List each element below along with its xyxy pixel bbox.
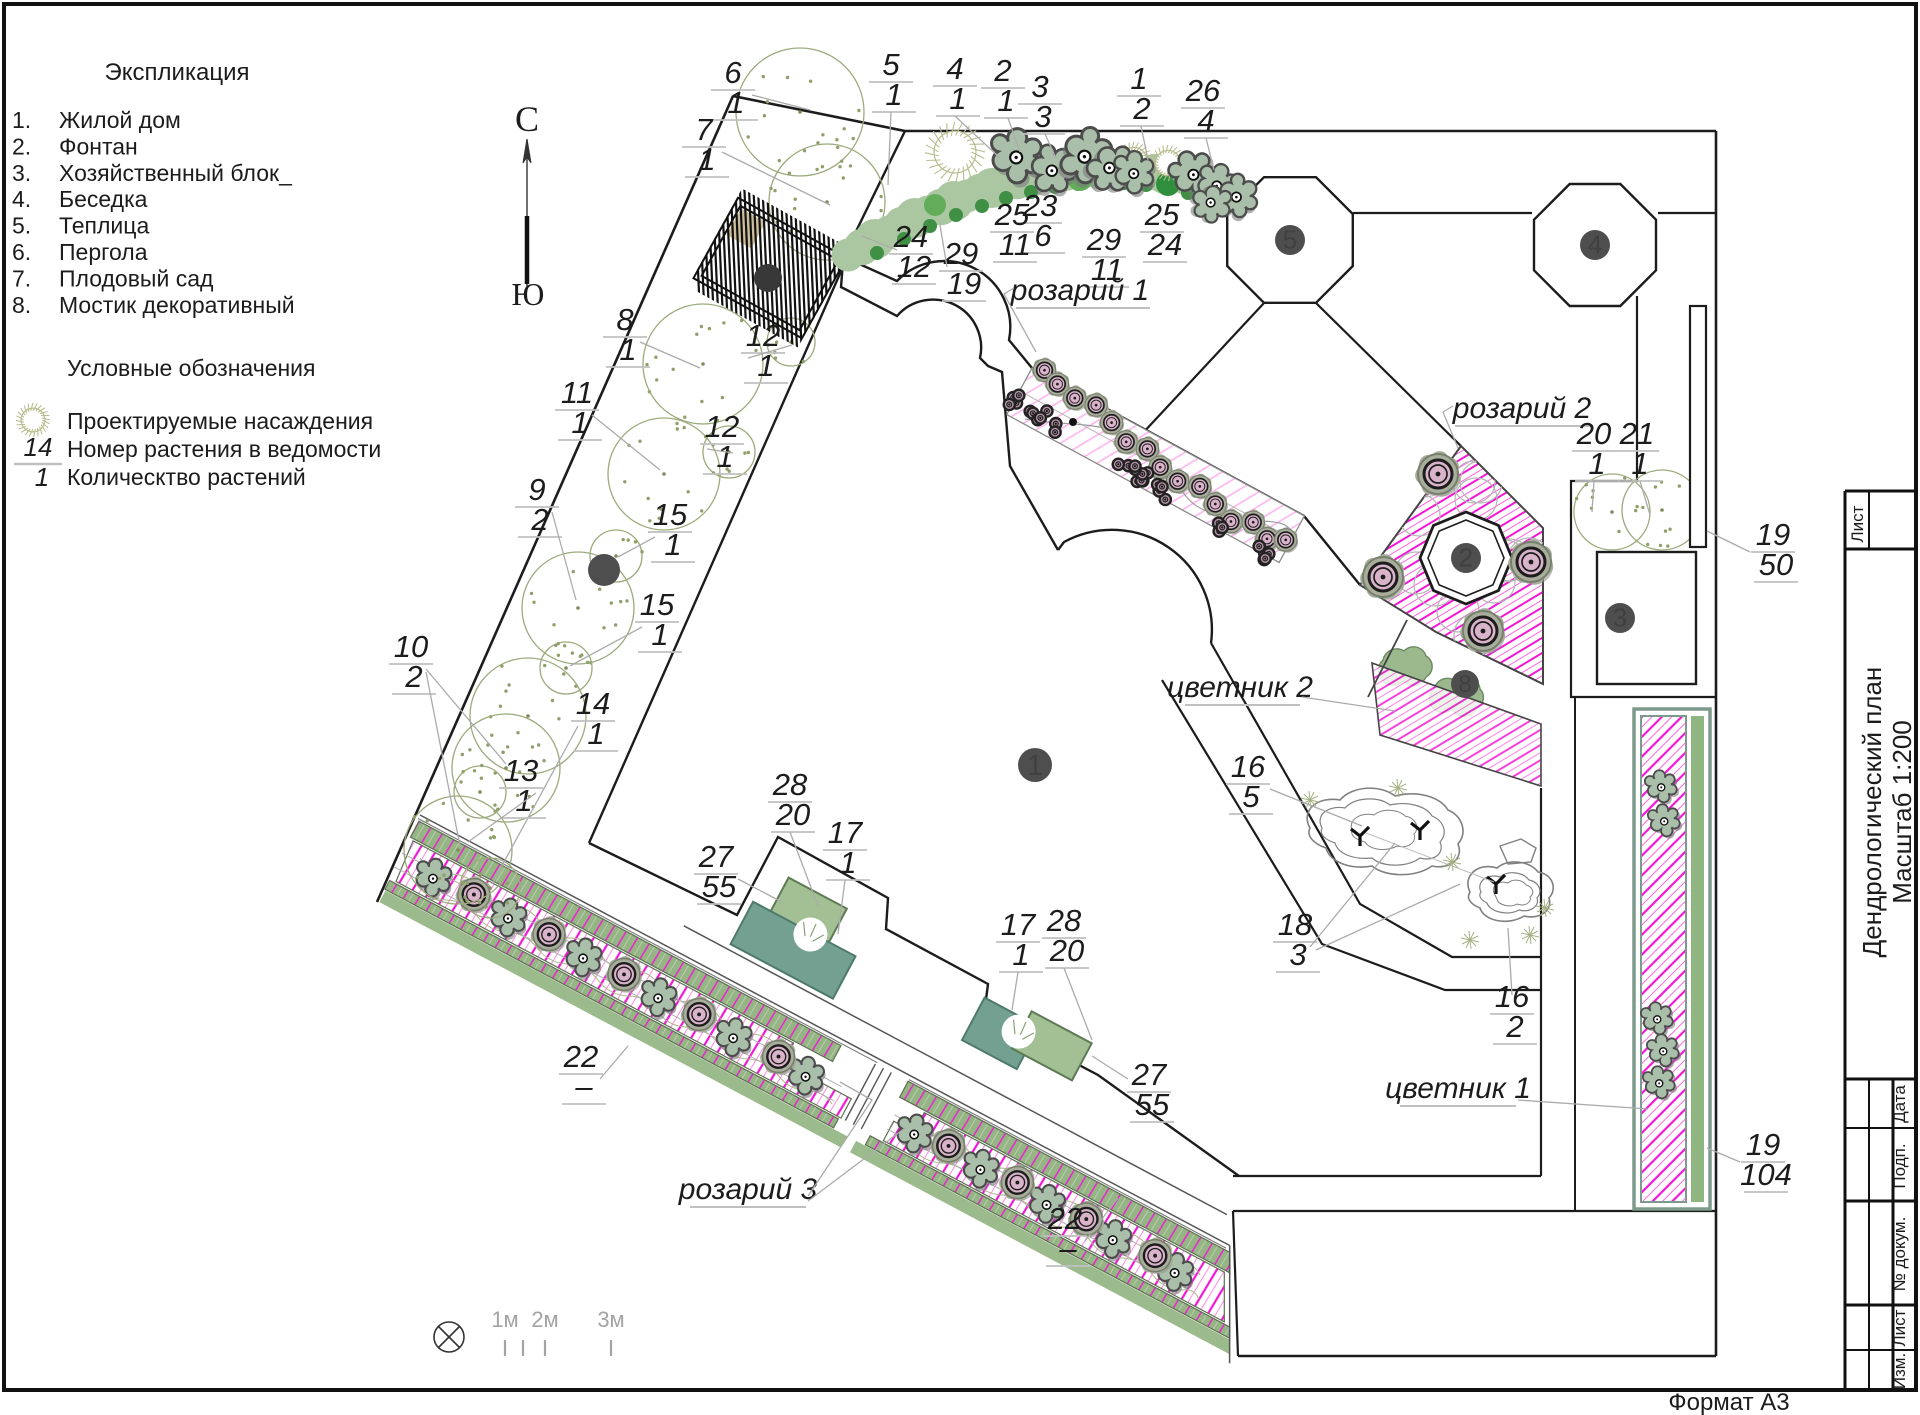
svg-text:14: 14 — [24, 432, 53, 462]
svg-text:1: 1 — [698, 142, 715, 177]
svg-text:1: 1 — [651, 617, 668, 652]
svg-text:2: 2 — [404, 659, 422, 694]
svg-text:8: 8 — [1458, 671, 1471, 698]
svg-text:–: – — [1058, 1231, 1077, 1266]
svg-text:Колическтво растений: Колическтво растений — [67, 464, 306, 490]
svg-text:1: 1 — [1012, 937, 1029, 972]
svg-text:3: 3 — [1034, 99, 1051, 134]
svg-text:4.: 4. — [12, 186, 31, 212]
svg-text:6: 6 — [1034, 218, 1052, 253]
svg-text:1: 1 — [997, 83, 1014, 118]
svg-text:Мостик декоративный: Мостик декоративный — [59, 292, 295, 318]
svg-text:1м: 1м — [491, 1307, 518, 1332]
svg-text:7.: 7. — [12, 265, 31, 291]
svg-text:1: 1 — [571, 405, 588, 440]
svg-text:12: 12 — [897, 249, 931, 284]
svg-text:55: 55 — [702, 869, 737, 904]
svg-text:Условные обозначения: Условные обозначения — [67, 355, 316, 381]
svg-text:50: 50 — [1759, 547, 1793, 582]
svg-text:Экспликация: Экспликация — [105, 59, 250, 86]
svg-text:2м: 2м — [531, 1307, 558, 1332]
svg-text:Дендрологический план: Дендрологический план — [1857, 667, 1887, 958]
svg-text:2: 2 — [530, 502, 548, 537]
svg-text:розарий 3: розарий 3 — [678, 1173, 818, 1206]
svg-text:2: 2 — [1132, 91, 1150, 126]
svg-text:1: 1 — [587, 716, 604, 751]
svg-text:1: 1 — [35, 462, 49, 492]
svg-text:Изм.: Изм. — [1890, 1353, 1909, 1389]
svg-text:4: 4 — [1197, 103, 1214, 138]
svg-text:11: 11 — [999, 227, 1031, 262]
svg-text:розарий 2: розарий 2 — [1452, 392, 1592, 425]
svg-text:20: 20 — [775, 797, 810, 832]
svg-text:19: 19 — [947, 266, 981, 301]
svg-text:№ докум.: № докум. — [1890, 1217, 1909, 1292]
svg-text:1: 1 — [885, 77, 902, 112]
svg-text:Формат А3: Формат А3 — [1668, 1389, 1789, 1415]
svg-text:Масштаб 1:200: Масштаб 1:200 — [1887, 720, 1917, 904]
svg-text:3: 3 — [1289, 937, 1306, 972]
svg-text:Подп.: Подп. — [1890, 1143, 1909, 1188]
svg-text:5: 5 — [1283, 225, 1297, 255]
svg-text:1: 1 — [1027, 750, 1043, 782]
svg-text:1: 1 — [839, 845, 856, 880]
svg-text:1: 1 — [619, 332, 636, 367]
svg-text:2: 2 — [1459, 543, 1473, 573]
svg-text:55: 55 — [1135, 1087, 1170, 1122]
svg-text:1: 1 — [716, 439, 733, 474]
svg-text:Лист: Лист — [1848, 505, 1867, 542]
svg-text:5.: 5. — [12, 213, 31, 239]
svg-text:3.: 3. — [12, 160, 31, 186]
svg-text:Дата: Дата — [1890, 1085, 1909, 1123]
svg-text:розарий 1: розарий 1 — [1010, 274, 1149, 307]
svg-text:4: 4 — [1588, 230, 1602, 260]
svg-text:5: 5 — [1242, 779, 1260, 814]
svg-text:104: 104 — [1740, 1157, 1792, 1192]
svg-text:Теплица: Теплица — [59, 213, 149, 239]
svg-text:–: – — [574, 1069, 593, 1104]
svg-text:1.: 1. — [12, 107, 31, 133]
svg-text:1: 1 — [1631, 446, 1648, 481]
svg-text:Номер растения в ведомости: Номер растения в ведомости — [67, 436, 381, 462]
svg-text:3: 3 — [1613, 603, 1627, 633]
svg-text:Жилой дом: Жилой дом — [59, 107, 181, 133]
svg-text:1: 1 — [1588, 446, 1605, 481]
svg-text:2.: 2. — [12, 133, 31, 159]
svg-text:Лист: Лист — [1890, 1309, 1909, 1346]
svg-text:1: 1 — [664, 527, 681, 562]
svg-text:Хозяйственный блок_: Хозяйственный блок_ — [59, 160, 293, 186]
svg-text:6.: 6. — [12, 239, 31, 265]
svg-text:цветник 1: цветник 1 — [1385, 1072, 1531, 1105]
svg-text:1: 1 — [727, 85, 744, 120]
svg-text:20: 20 — [1049, 933, 1084, 968]
svg-text:1: 1 — [515, 783, 532, 818]
svg-text:3м: 3м — [597, 1307, 624, 1332]
svg-text:Пергола: Пергола — [59, 239, 148, 265]
svg-text:2: 2 — [1505, 1009, 1523, 1044]
svg-text:8.: 8. — [12, 292, 31, 318]
svg-text:Плодовый сад: Плодовый сад — [59, 265, 214, 291]
svg-text:Беседка: Беседка — [59, 186, 148, 212]
svg-text:24: 24 — [1147, 227, 1182, 262]
svg-text:Проектируемые насаждения: Проектируемые насаждения — [67, 408, 373, 434]
svg-text:1: 1 — [949, 81, 966, 116]
svg-text:C: C — [515, 99, 539, 139]
svg-text:Фонтан: Фонтан — [59, 133, 138, 159]
svg-text:цветник 2: цветник 2 — [1167, 671, 1313, 704]
svg-text:Ю: Ю — [512, 276, 545, 312]
